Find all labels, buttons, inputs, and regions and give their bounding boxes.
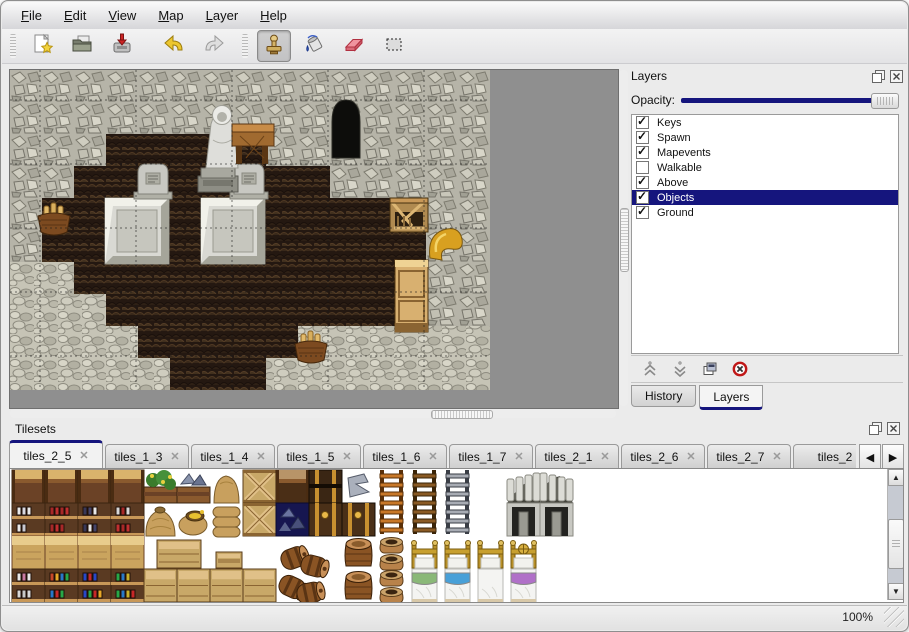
tileset-vertical-scrollbar[interactable]: ▲ ▼ bbox=[887, 469, 903, 600]
app-window: File Edit View Map Layer Help bbox=[0, 0, 909, 632]
menu-map[interactable]: Map bbox=[147, 5, 194, 26]
layer-label: Walkable bbox=[657, 162, 702, 174]
new-document-icon bbox=[30, 32, 54, 61]
lower-layer-button[interactable] bbox=[667, 359, 693, 379]
fill-tool-button[interactable] bbox=[297, 30, 331, 62]
close-tab-icon[interactable]: ✕ bbox=[428, 450, 437, 463]
tileset-tab[interactable]: tiles_2 bbox=[793, 444, 856, 468]
zoom-level: 100% bbox=[842, 610, 873, 624]
layer-row-walkable[interactable]: ✓ Walkable bbox=[632, 160, 898, 175]
layer-list: ✓ Keys ✓ Spawn ✓ Mapevents ✓ Walkable ✓ … bbox=[631, 114, 899, 354]
close-tab-icon[interactable]: ✕ bbox=[170, 450, 179, 463]
eraser-tool-button[interactable] bbox=[337, 30, 371, 62]
opacity-slider-track bbox=[681, 98, 899, 103]
layer-visibility-checkbox[interactable]: ✓ bbox=[636, 116, 649, 129]
select-tool-button[interactable] bbox=[377, 30, 411, 62]
close-tab-icon[interactable]: ✕ bbox=[686, 450, 695, 463]
resize-grip[interactable] bbox=[884, 607, 904, 627]
layer-label: Above bbox=[657, 177, 688, 189]
tileset-tab[interactable]: tiles_2_1✕ bbox=[535, 444, 619, 468]
cave-entrance bbox=[332, 100, 360, 158]
close-tab-icon[interactable]: ✕ bbox=[342, 450, 351, 463]
layer-row-ground[interactable]: ✓ Ground bbox=[632, 205, 898, 220]
close-tab-icon[interactable]: ✕ bbox=[600, 450, 609, 463]
close-tab-icon[interactable]: ✕ bbox=[514, 450, 523, 463]
menu-help[interactable]: Help bbox=[249, 5, 298, 26]
broken-crate bbox=[390, 198, 428, 232]
toolbar bbox=[2, 29, 907, 64]
tilesets-title: Tilesets bbox=[15, 422, 906, 436]
save-icon bbox=[110, 32, 134, 61]
redo-button[interactable] bbox=[197, 30, 231, 62]
paint-bucket-icon bbox=[302, 32, 326, 61]
layer-label: Mapevents bbox=[657, 147, 711, 159]
tilesets-panel: Tilesets tiles_2_5✕ tiles_1_3✕ tiles_1_4… bbox=[5, 419, 906, 605]
tileset-scrollbar-thumb[interactable] bbox=[888, 519, 904, 569]
map-vertical-scrollbar-thumb[interactable] bbox=[620, 208, 629, 272]
layers-panel-titlebar: Layers bbox=[631, 67, 903, 85]
eraser-icon bbox=[342, 32, 366, 61]
layer-label: Keys bbox=[657, 117, 681, 129]
new-map-button[interactable] bbox=[25, 30, 59, 62]
tilesets-titlebar: Tilesets bbox=[5, 419, 906, 439]
float-panel-icon[interactable] bbox=[872, 70, 885, 83]
undo-button[interactable] bbox=[157, 30, 191, 62]
marble-platform bbox=[201, 198, 265, 264]
menu-edit[interactable]: Edit bbox=[53, 5, 97, 26]
opacity-slider[interactable] bbox=[681, 92, 899, 108]
close-panel-icon[interactable] bbox=[887, 422, 900, 435]
layer-label: Objects bbox=[657, 192, 694, 204]
opacity-slider-handle[interactable] bbox=[871, 93, 899, 109]
tileset-tab[interactable]: tiles_1_7✕ bbox=[449, 444, 533, 468]
dock-tab-bar: History Layers bbox=[631, 385, 766, 410]
raise-layer-button[interactable] bbox=[637, 359, 663, 379]
layer-visibility-checkbox[interactable]: ✓ bbox=[636, 161, 649, 174]
menu-file[interactable]: File bbox=[10, 5, 53, 26]
layer-row-mapevents[interactable]: ✓ Mapevents bbox=[632, 145, 898, 160]
menu-layer[interactable]: Layer bbox=[195, 5, 250, 26]
layer-row-above[interactable]: ✓ Above bbox=[632, 175, 898, 190]
close-tab-icon[interactable]: ✕ bbox=[79, 449, 88, 462]
tileset-tab[interactable]: tiles_2_5✕ bbox=[9, 440, 103, 468]
tileset-tab[interactable]: tiles_2_7✕ bbox=[707, 444, 791, 468]
layer-label: Spawn bbox=[657, 132, 691, 144]
gravestone bbox=[134, 164, 172, 199]
tileset-tab[interactable]: tiles_1_3✕ bbox=[105, 444, 189, 468]
tileset-tab[interactable]: tiles_1_4✕ bbox=[191, 444, 275, 468]
scroll-down-arrow[interactable]: ▼ bbox=[888, 583, 904, 600]
map-art bbox=[10, 70, 616, 406]
map-canvas[interactable] bbox=[9, 69, 619, 409]
close-tab-icon[interactable]: ✕ bbox=[772, 450, 781, 463]
duplicate-layer-button[interactable] bbox=[697, 359, 723, 379]
float-panel-icon[interactable] bbox=[869, 422, 882, 435]
tileset-tab-bar: tiles_2_5✕ tiles_1_3✕ tiles_1_4✕ tiles_1… bbox=[9, 440, 856, 468]
status-bar: 100% bbox=[2, 605, 907, 630]
layer-visibility-checkbox[interactable]: ✓ bbox=[636, 176, 649, 189]
redo-arrow-icon bbox=[202, 32, 226, 61]
stamp-icon bbox=[262, 32, 286, 61]
close-panel-icon[interactable] bbox=[890, 70, 903, 83]
open-folder-icon bbox=[70, 32, 94, 61]
layer-row-keys[interactable]: ✓ Keys bbox=[632, 115, 898, 130]
delete-layer-button[interactable] bbox=[727, 359, 753, 379]
save-map-button[interactable] bbox=[105, 30, 139, 62]
layer-row-spawn[interactable]: ✓ Spawn bbox=[632, 130, 898, 145]
selection-rectangle-icon bbox=[382, 32, 406, 61]
wooden-cabinet bbox=[395, 260, 428, 332]
opacity-row: Opacity: bbox=[631, 91, 899, 109]
tab-scroll-arrows: ◀ ▶ bbox=[858, 444, 904, 470]
menu-bar: File Edit View Map Layer Help bbox=[2, 2, 907, 30]
undo-arrow-icon bbox=[162, 32, 186, 61]
layer-row-objects[interactable]: ✓ Objects bbox=[632, 190, 898, 205]
layer-visibility-checkbox[interactable]: ✓ bbox=[636, 191, 649, 204]
scroll-tabs-left-button[interactable]: ◀ bbox=[859, 444, 881, 470]
layer-visibility-checkbox[interactable]: ✓ bbox=[636, 146, 649, 159]
scroll-up-arrow[interactable]: ▲ bbox=[888, 469, 904, 486]
tab-history[interactable]: History bbox=[631, 385, 696, 407]
tileset-image[interactable]: ▲ ▼ bbox=[9, 468, 904, 603]
layers-panel: Layers Opacity: ✓ Keys ✓ Spawn ✓ Mapeven… bbox=[631, 67, 903, 415]
open-map-button[interactable] bbox=[65, 30, 99, 62]
layers-panel-title: Layers bbox=[631, 69, 867, 83]
map-horizontal-scrollbar-thumb[interactable] bbox=[431, 410, 493, 419]
layer-visibility-checkbox[interactable]: ✓ bbox=[636, 206, 649, 219]
map-vertical-scrollbar[interactable] bbox=[619, 70, 628, 406]
toolbar-drag-handle[interactable] bbox=[10, 34, 16, 58]
stamp-tool-button[interactable] bbox=[257, 30, 291, 62]
menu-view[interactable]: View bbox=[97, 5, 147, 26]
layer-visibility-checkbox[interactable]: ✓ bbox=[636, 131, 649, 144]
tileset-tab[interactable]: tiles_1_6✕ bbox=[363, 444, 447, 468]
tileset-art bbox=[10, 469, 886, 602]
marble-platform bbox=[105, 198, 169, 264]
layer-actions-row bbox=[631, 355, 903, 383]
tileset-tab[interactable]: tiles_1_5✕ bbox=[277, 444, 361, 468]
layer-label: Ground bbox=[657, 207, 694, 219]
opacity-label: Opacity: bbox=[631, 93, 681, 107]
tileset-tab[interactable]: tiles_2_6✕ bbox=[621, 444, 705, 468]
map-horizontal-scrollbar[interactable] bbox=[10, 409, 616, 418]
toolbar-drag-handle[interactable] bbox=[242, 34, 248, 58]
tab-layers[interactable]: Layers bbox=[699, 385, 763, 410]
scroll-tabs-right-button[interactable]: ▶ bbox=[882, 444, 904, 470]
close-tab-icon[interactable]: ✕ bbox=[256, 450, 265, 463]
